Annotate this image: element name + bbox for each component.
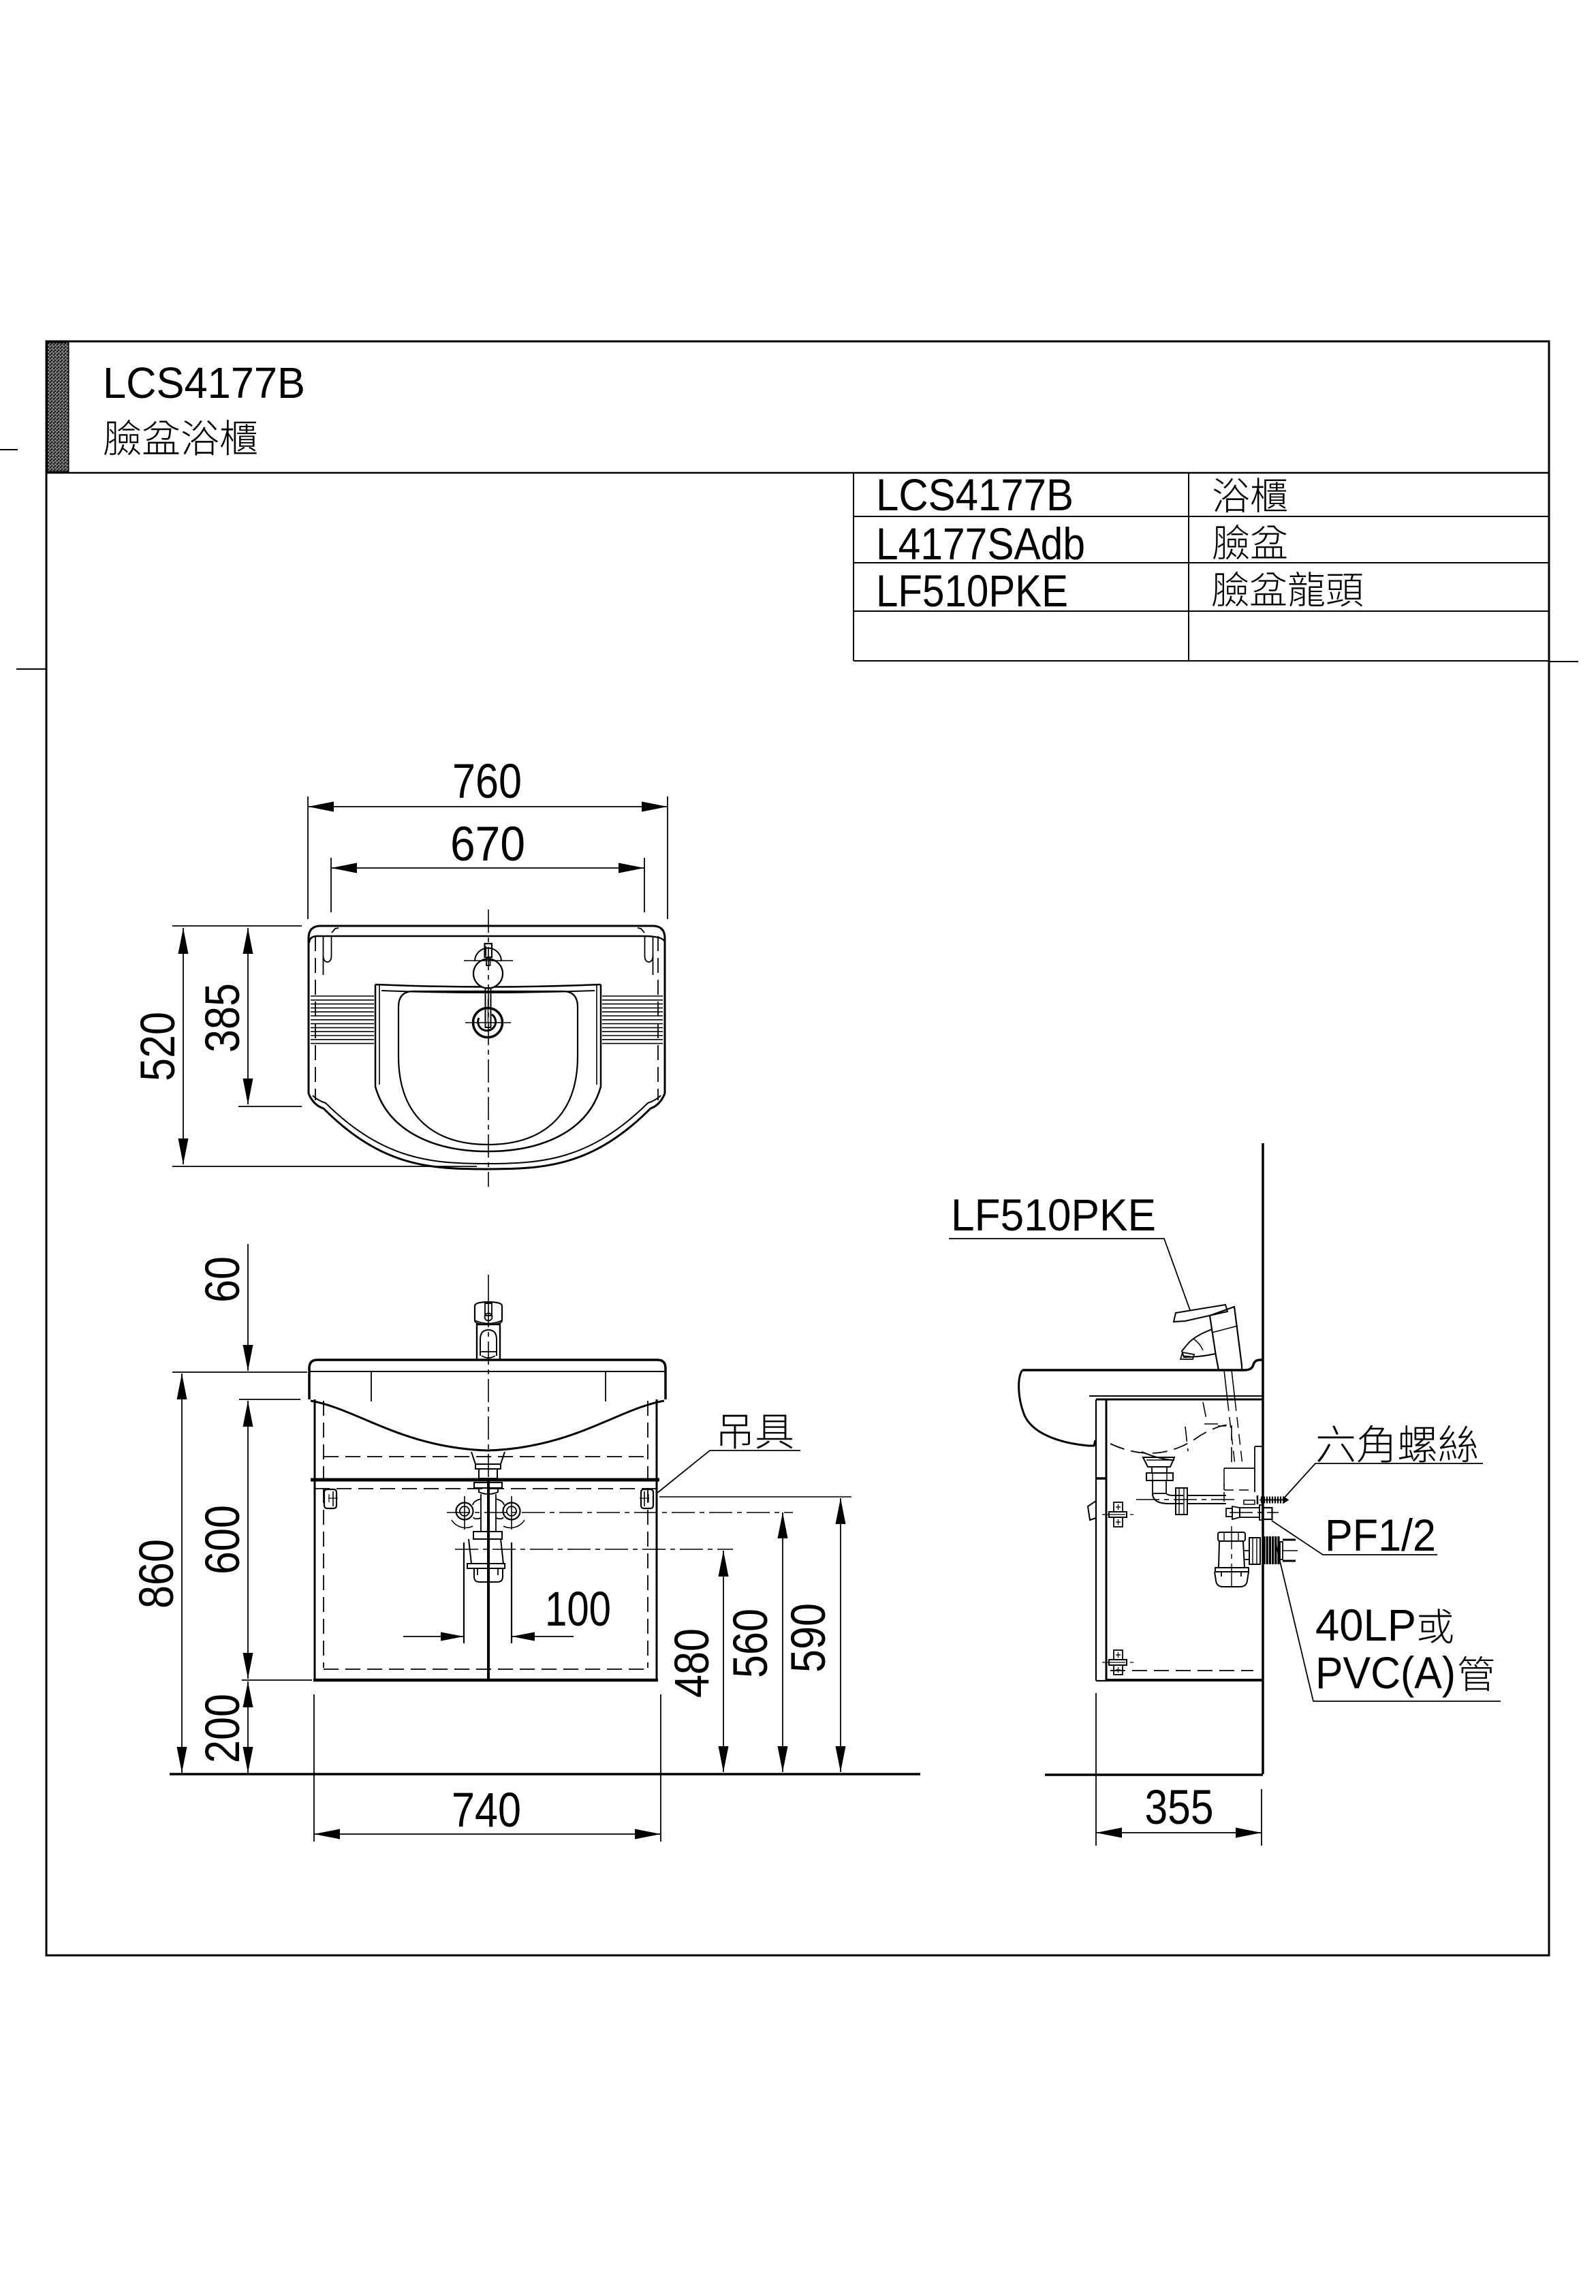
svg-text:480: 480 [666,1628,719,1698]
svg-text:590: 590 [782,1603,836,1673]
svg-text:60: 60 [196,1256,250,1303]
svg-text:560: 560 [724,1609,778,1678]
svg-text:200: 200 [196,1694,250,1763]
svg-text:LCS4177B: LCS4177B [103,358,305,407]
svg-text:LF510PKE: LF510PKE [951,1190,1156,1240]
svg-text:355: 355 [1145,1781,1214,1835]
svg-text:760: 760 [452,755,522,809]
svg-text:LCS4177B: LCS4177B [876,469,1074,520]
svg-text:L4177SAdb: L4177SAdb [876,518,1085,569]
svg-text:600: 600 [196,1505,250,1574]
svg-text:520: 520 [131,1012,185,1081]
svg-text:40LP: 40LP [1315,1600,1416,1650]
svg-text:LF510PKE: LF510PKE [876,565,1068,616]
svg-text:740: 740 [452,1784,521,1837]
svg-text:860: 860 [130,1539,184,1609]
svg-text:385: 385 [196,983,250,1053]
svg-text:PVC(A): PVC(A) [1315,1647,1456,1698]
svg-text:100: 100 [545,1583,611,1636]
svg-text:PF1/2: PF1/2 [1325,1510,1436,1560]
svg-text:670: 670 [450,818,525,871]
